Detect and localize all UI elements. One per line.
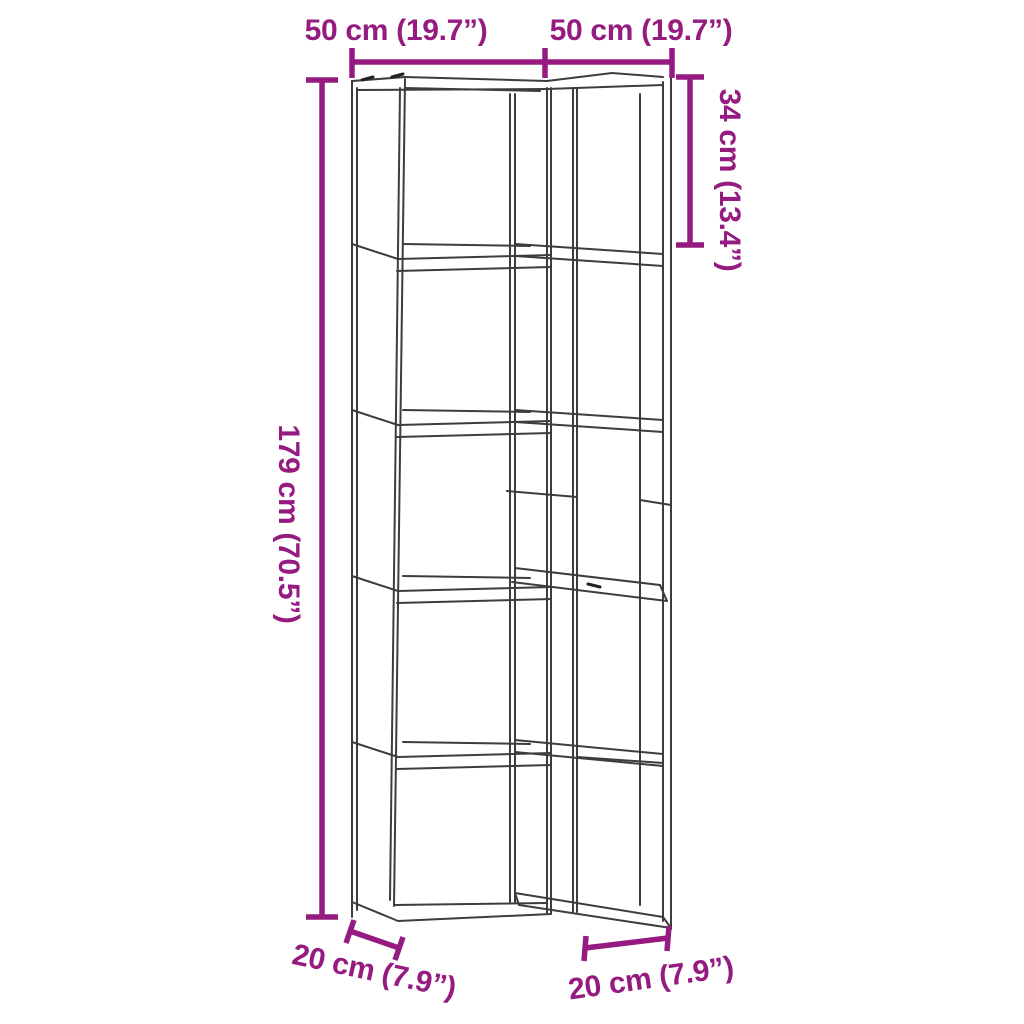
dim-label-top-section-height: 34 cm (13.4”) (712, 89, 746, 272)
corner-front-post (547, 88, 551, 913)
dim-label-total-height: 179 cm (70.5”) (271, 424, 305, 623)
diagram-canvas: 50 cm (19.7”) 50 cm (19.7”) 34 cm (13.4”… (0, 0, 1024, 1024)
dimension-lines (306, 48, 704, 961)
dim-line-bottom-right-depth (584, 926, 669, 961)
back-shelf-edge (507, 491, 671, 763)
dim-line-top-section-height (676, 77, 704, 245)
shelf-board (352, 410, 663, 437)
right-wing-front-post (573, 88, 577, 912)
back-corner-edge (510, 94, 515, 903)
dim-label-top-right-width: 50 cm (19.7”) (550, 14, 733, 48)
dim-label-top-left-width: 50 cm (19.7”) (305, 14, 488, 48)
bottom-board (352, 893, 671, 928)
bookshelf-dimension-diagram (0, 0, 1024, 1024)
dim-line-total-height (306, 80, 338, 917)
left-side-panel (352, 79, 405, 917)
bookshelf-wireframe (352, 73, 671, 929)
shelf-board (352, 740, 663, 769)
